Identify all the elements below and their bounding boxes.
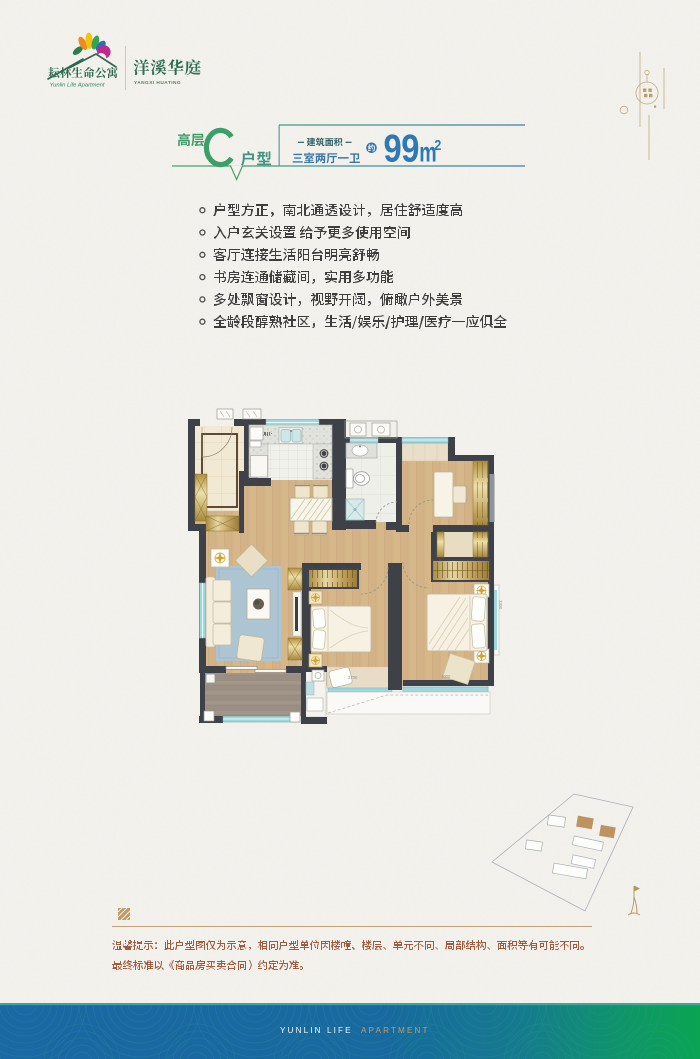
svg-text:YANGXI HUATING: YANGXI HUATING: [134, 80, 181, 86]
svg-text:3000: 3000: [441, 674, 451, 679]
svg-text:99: 99: [384, 127, 420, 170]
svg-text:3300: 3300: [498, 600, 503, 610]
svg-text:YUNLIN LIFE: YUNLIN LIFE: [280, 1026, 353, 1035]
svg-text:2700: 2700: [348, 675, 358, 680]
svg-text:3750: 3750: [246, 674, 256, 679]
svg-text:2: 2: [434, 136, 441, 153]
svg-text:Yunlin Life Apartment: Yunlin Life Apartment: [50, 83, 105, 89]
svg-text:APARTMENT: APARTMENT: [361, 1026, 430, 1035]
